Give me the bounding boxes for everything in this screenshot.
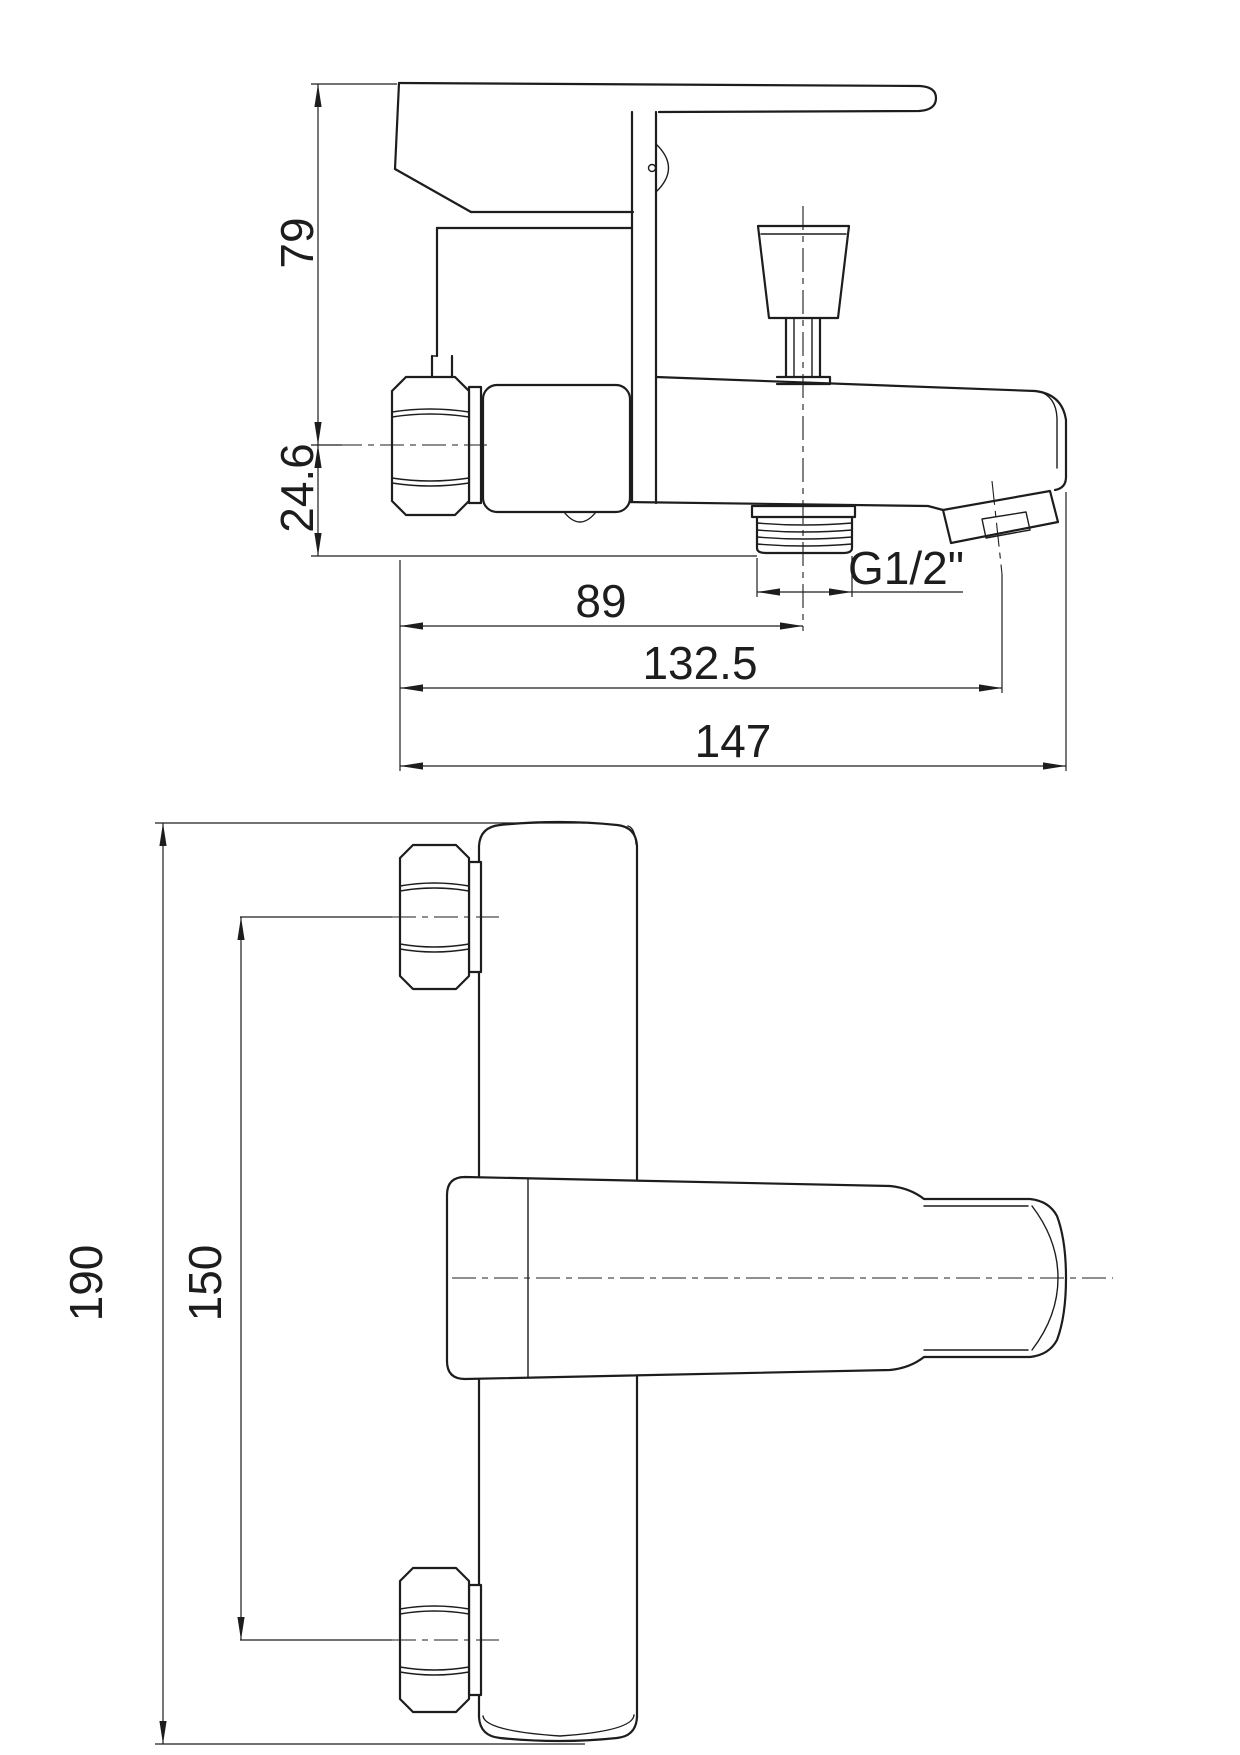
technical-drawing-page: 79 24.6 89 G1/2" 132.5 147 bbox=[0, 0, 1240, 1755]
cad-drawing: 79 24.6 89 G1/2" 132.5 147 bbox=[0, 0, 1240, 1755]
dim-connection-centres-label: 150 bbox=[179, 1245, 231, 1322]
underside-bump bbox=[564, 512, 596, 522]
dim-body-drop-label: 24.6 bbox=[271, 443, 323, 533]
dim-overall-depth-label: 147 bbox=[695, 715, 772, 767]
dim-handle-height-label: 79 bbox=[271, 217, 323, 268]
aerator-slot bbox=[982, 512, 1030, 538]
wall-nut-side bbox=[392, 377, 481, 515]
escutcheon-cover bbox=[483, 385, 630, 512]
faucet-body bbox=[432, 228, 632, 377]
dim-spout-tip-offset-label: 132.5 bbox=[642, 637, 757, 689]
dim-outlet-offset-label: 89 bbox=[575, 575, 626, 627]
dim-outlet-thread-label: G1/2" bbox=[848, 542, 964, 594]
side-elevation-view: 79 24.6 89 G1/2" 132.5 147 bbox=[271, 83, 1066, 771]
side-dimensions: 79 24.6 89 G1/2" 132.5 147 bbox=[271, 84, 1066, 771]
set-screw-dot bbox=[649, 165, 656, 172]
dim-overall-width-label: 190 bbox=[60, 1245, 112, 1322]
plan-view: 190 150 bbox=[60, 822, 1113, 1744]
